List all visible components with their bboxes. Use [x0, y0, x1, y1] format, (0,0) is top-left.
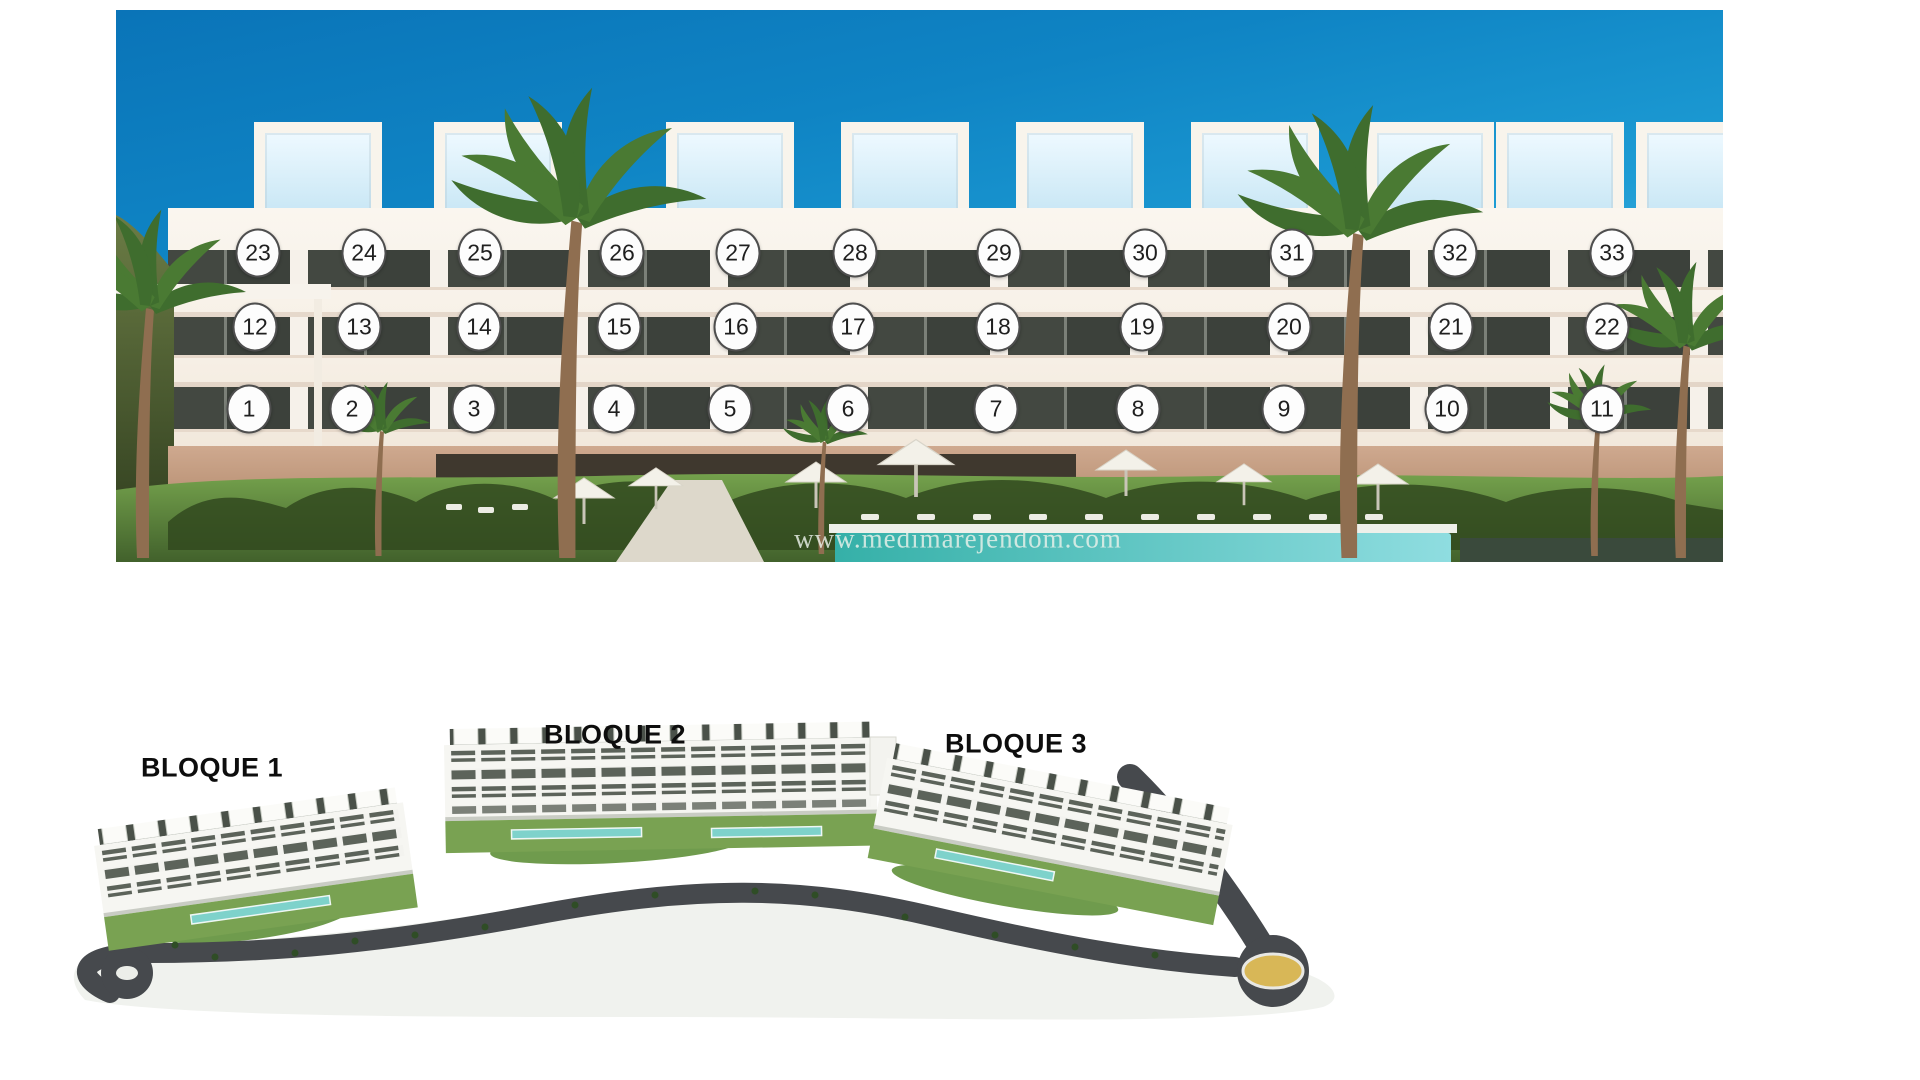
rooftop-pergola [1191, 122, 1319, 212]
unit-badge-29: 29 [977, 229, 1022, 278]
site-plan: BLOQUE 1BLOQUE 2BLOQUE 3 [55, 695, 1455, 1025]
unit-badge-17: 17 [831, 303, 876, 352]
rooftop-pergola [254, 122, 382, 212]
unit-badge-12: 12 [233, 303, 278, 352]
unit-badge-14: 14 [457, 303, 502, 352]
window-strip-floor1 [168, 317, 1723, 358]
unit-badge-30: 30 [1123, 229, 1168, 278]
unit-badge-13: 13 [337, 303, 382, 352]
unit-badge-2: 2 [330, 385, 375, 434]
rooftop-pergola [1016, 122, 1144, 212]
sun-loungers [446, 504, 1383, 520]
site-plan-label-bloque-3: BLOQUE 3 [945, 729, 1087, 760]
roundabout-center [1243, 954, 1303, 988]
page: www.medimarejendom.com 23242526272829303… [0, 0, 1920, 1080]
walkway [616, 480, 764, 562]
rooftop-pergola [841, 122, 969, 212]
unit-badge-6: 6 [826, 385, 871, 434]
unit-badge-22: 22 [1585, 303, 1630, 352]
unit-badge-11: 11 [1580, 385, 1625, 434]
unit-badge-7: 7 [974, 385, 1019, 434]
window-strip-floor0 [168, 387, 1723, 432]
rooftop-pergola [434, 122, 562, 212]
unit-badge-32: 32 [1433, 229, 1478, 278]
garage-opening [436, 454, 1076, 516]
site-plan-render [55, 695, 1455, 1025]
rooftop-pergola [1496, 122, 1624, 212]
unit-badge-24: 24 [342, 229, 387, 278]
rooftop-pergola [666, 122, 794, 212]
unit-badge-9: 9 [1262, 385, 1307, 434]
rooftop-pergola [1366, 122, 1494, 212]
rooftop-pergola [1636, 122, 1723, 212]
unit-badge-15: 15 [597, 303, 642, 352]
site-plan-label-bloque-1: BLOQUE 1 [141, 753, 283, 784]
unit-badge-25: 25 [458, 229, 503, 278]
building-facade [168, 208, 1723, 462]
unit-badge-20: 20 [1267, 303, 1312, 352]
hillside [116, 215, 174, 562]
unit-badge-33: 33 [1590, 229, 1635, 278]
elevation-photo: www.medimarejendom.com 23242526272829303… [116, 10, 1723, 562]
unit-badge-23: 23 [236, 229, 281, 278]
unit-badge-10: 10 [1425, 385, 1470, 434]
unit-badge-16: 16 [714, 303, 759, 352]
unit-badge-27: 27 [716, 229, 761, 278]
unit-badge-28: 28 [833, 229, 878, 278]
unit-badge-3: 3 [452, 385, 497, 434]
unit-badge-8: 8 [1116, 385, 1161, 434]
window-strip-floor2 [168, 250, 1723, 290]
watermark-text: www.medimarejendom.com [794, 524, 1122, 555]
hedge [1460, 538, 1723, 562]
unit-badge-19: 19 [1120, 303, 1165, 352]
unit-badge-1: 1 [227, 385, 272, 434]
unit-badge-21: 21 [1429, 303, 1474, 352]
site-plan-label-bloque-2: BLOQUE 2 [544, 720, 686, 751]
unit-badge-4: 4 [592, 385, 637, 434]
unit-badge-5: 5 [708, 385, 753, 434]
unit-badge-26: 26 [600, 229, 645, 278]
unit-badge-18: 18 [976, 303, 1021, 352]
bloque-1-building [92, 787, 418, 951]
unit-badge-31: 31 [1270, 229, 1315, 278]
